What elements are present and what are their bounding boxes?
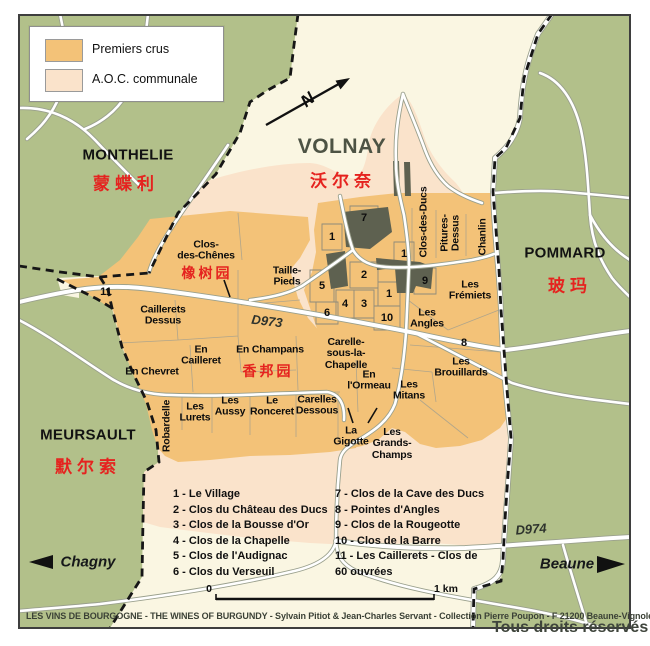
volnay-wine-map: Premiers crus A.O.C. communale MONTHELIE… (0, 0, 650, 646)
index-list-left: 1 - Le Village 2 - Clos du Château des D… (173, 487, 328, 581)
parcel-number-9: 9 (422, 275, 428, 287)
list-item-8: 8 - Pointes d'Angles (335, 503, 484, 519)
road-label-d974: D974 (515, 520, 547, 537)
parcel-number-7: 7 (361, 212, 367, 224)
list-item-3: 3 - Clos de la Bousse d'Or (173, 518, 328, 534)
index-list-right: 7 - Clos de la Cave des Ducs 8 - Pointes… (335, 487, 484, 581)
legend-label-premiers-crus: Premiers crus (92, 39, 169, 60)
vineyard-label-en-chevret: En Chevret (125, 366, 178, 377)
direction-west-label: Chagny (60, 554, 115, 571)
vineyard-label-clos-des-chenes: Clos- des-Chênes (177, 240, 235, 263)
vineyard-label-caillerets-dessus: Caillerets Dessus (140, 305, 185, 328)
vineyard-label-clos-des-ducs: Clos-des-Ducs (418, 187, 429, 258)
list-item-4: 4 - Clos de la Chapelle (173, 534, 328, 550)
vineyard-label-grands-champs: Les Grands- Champs (372, 427, 412, 461)
parcel-number-5: 5 (319, 280, 325, 292)
vineyard-label-pitures-dessus: Pitures- Dessus (440, 214, 463, 252)
vineyard-label-les-lurets: Les Lurets (180, 402, 211, 425)
commune-label-monthelie: MONTHELIE (82, 147, 173, 164)
vineyard-label-chanlin: Chanlin (477, 218, 488, 255)
vineyard-label-en-champans: En Champans (236, 344, 304, 355)
parcel-number-1c: 1 (386, 288, 392, 300)
list-item-10: 10 - Clos de la Barre (335, 534, 484, 550)
direction-east-label: Beaune (540, 556, 594, 573)
vineyard-label-robardelle: Robardelle (161, 400, 172, 452)
parcel-number-11: 11 (100, 286, 112, 298)
vineyard-label-carelles-dessous: Carelles Dessous (296, 395, 338, 418)
scale-start-label: 0 (206, 583, 212, 595)
rights-reserved: Tous droits réservés (492, 619, 648, 637)
scale-end-label: 1 km (434, 583, 458, 595)
parcel-number-6: 6 (324, 307, 330, 319)
commune-label-pommard: POMMARD (524, 245, 605, 262)
list-item-11b: 60 ouvrées (335, 565, 484, 581)
commune-label-volnay: VOLNAY (298, 135, 387, 159)
vineyard-label-carelle-sous-la-chapelle: Carelle- sous-la- Chapelle (325, 337, 367, 371)
parcel-number-1a: 1 (329, 231, 335, 243)
parcel-number-1b: 1 (401, 248, 407, 260)
parcel-number-3: 3 (361, 298, 367, 310)
legend-label-aoc-communale: A.O.C. communale (92, 69, 198, 90)
cjk-label-monthelie: 蒙蝶利 (93, 170, 159, 195)
legend: Premiers crus A.O.C. communale (29, 26, 224, 102)
vineyard-label-en-cailleret: En Cailleret (181, 345, 221, 368)
vineyard-label-taille-pieds: Taille- Pieds (273, 266, 301, 289)
vineyard-label-les-fremiets: Les Frémiets (449, 280, 491, 303)
parcel-number-8: 8 (461, 337, 467, 349)
parcel-number-10: 10 (381, 312, 393, 324)
cjk-label-volnay: 沃尔奈 (310, 167, 376, 192)
list-item-5: 5 - Clos de l'Audignac (173, 549, 328, 565)
list-item-7: 7 - Clos de la Cave des Ducs (335, 487, 484, 503)
list-item-1: 1 - Le Village (173, 487, 328, 503)
legend-swatch-aoc-communale (45, 69, 83, 92)
parcel-number-4: 4 (342, 298, 348, 310)
legend-swatch-premiers-crus (45, 39, 83, 62)
cjk-label-pommard: 玻玛 (548, 272, 592, 297)
vineyard-label-le-ronceret: Le Ronceret (250, 396, 294, 419)
parcel-number-2: 2 (361, 269, 367, 281)
list-item-2: 2 - Clos du Château des Ducs (173, 503, 328, 519)
vineyard-label-les-aussy: Les Aussy (215, 396, 246, 419)
list-item-9: 9 - Clos de la Rougeotte (335, 518, 484, 534)
cjk-label-en-champans: 香邦园 (243, 361, 294, 381)
vineyard-label-la-gigotte: La Gigotte (333, 426, 368, 449)
cjk-label-meursault: 默尔索 (55, 453, 121, 478)
vineyard-label-les-brouillards: Les Brouillards (434, 357, 487, 380)
vineyard-label-les-mitans: Les Mitans (393, 380, 425, 403)
cjk-label-clos-des-chenes: 橡树园 (182, 263, 233, 283)
list-item-11: 11 - Les Caillerets - Clos de (335, 549, 484, 565)
list-item-6: 6 - Clos du Verseuil (173, 565, 328, 581)
vineyard-label-en-l-ormeau: En l'Ormeau (347, 370, 391, 393)
vineyard-label-les-angles: Les Angles (410, 308, 444, 331)
commune-label-meursault: MEURSAULT (40, 427, 136, 444)
